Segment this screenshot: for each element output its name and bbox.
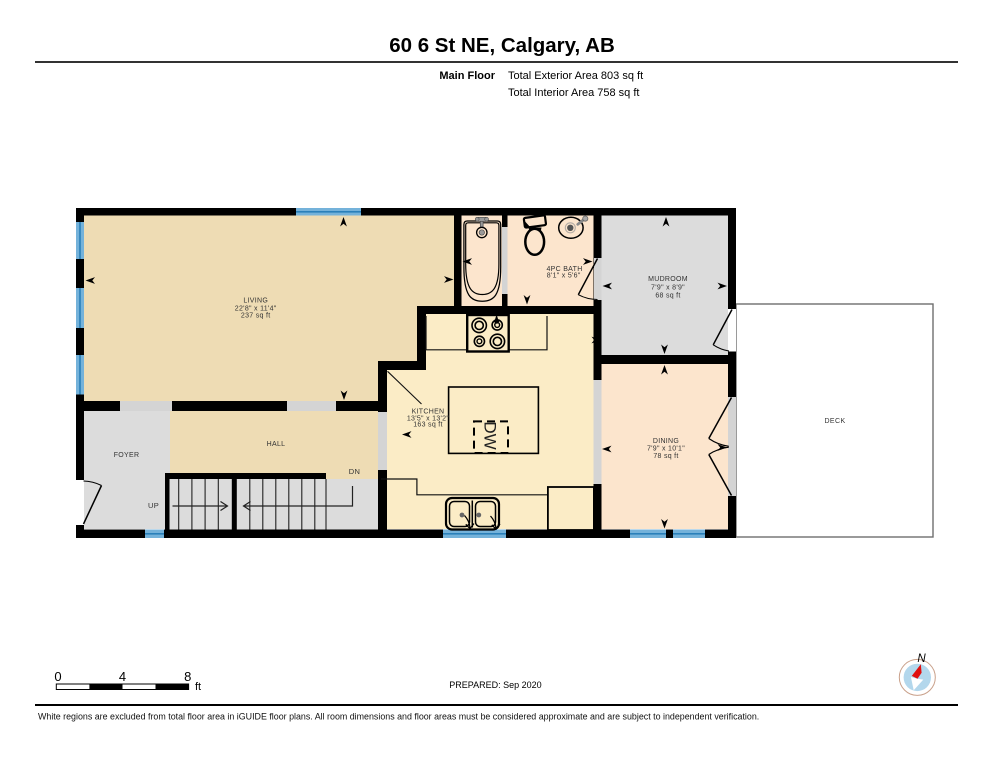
svg-text:60 6 St NE, Calgary, AB: 60 6 St NE, Calgary, AB [389,34,615,57]
svg-text:ft: ft [195,681,201,693]
svg-text:LIVING: LIVING [243,298,268,305]
svg-text:HALL: HALL [267,441,286,448]
svg-text:Main Floor: Main Floor [439,70,495,82]
svg-text:8: 8 [184,669,191,684]
svg-text:78 sq ft: 78 sq ft [653,453,678,460]
svg-text:DN: DN [349,467,360,476]
svg-text:7'9" x 8'9": 7'9" x 8'9" [651,285,685,292]
svg-text:KITCHEN: KITCHEN [412,408,445,415]
svg-text:0: 0 [54,669,61,684]
svg-text:PREPARED: Sep 2020: PREPARED: Sep 2020 [449,680,541,690]
svg-text:8'1" x 5'6": 8'1" x 5'6" [547,273,581,280]
svg-text:UP: UP [148,501,159,510]
svg-text:DW: DW [481,421,500,449]
svg-text:68 sq ft: 68 sq ft [655,292,680,299]
svg-text:FOYER: FOYER [114,452,140,459]
svg-text:237 sq ft: 237 sq ft [241,313,271,320]
svg-text:4: 4 [119,669,126,684]
svg-text:Total Interior Area 758 sq ft: Total Interior Area 758 sq ft [508,87,639,99]
svg-text:163 sq ft: 163 sq ft [413,421,443,428]
svg-text:Total Exterior Area 803 sq ft: Total Exterior Area 803 sq ft [508,70,643,82]
svg-text:DECK: DECK [824,418,845,425]
svg-text:N: N [917,653,926,665]
svg-text:22'8" x 11'4": 22'8" x 11'4" [235,305,277,312]
svg-text:7'9" x 10'1": 7'9" x 10'1" [647,446,685,453]
svg-text:White regions are excluded fro: White regions are excluded from total fl… [38,712,759,722]
svg-text:MUDROOM: MUDROOM [648,276,688,283]
svg-text:DINING: DINING [653,438,679,445]
